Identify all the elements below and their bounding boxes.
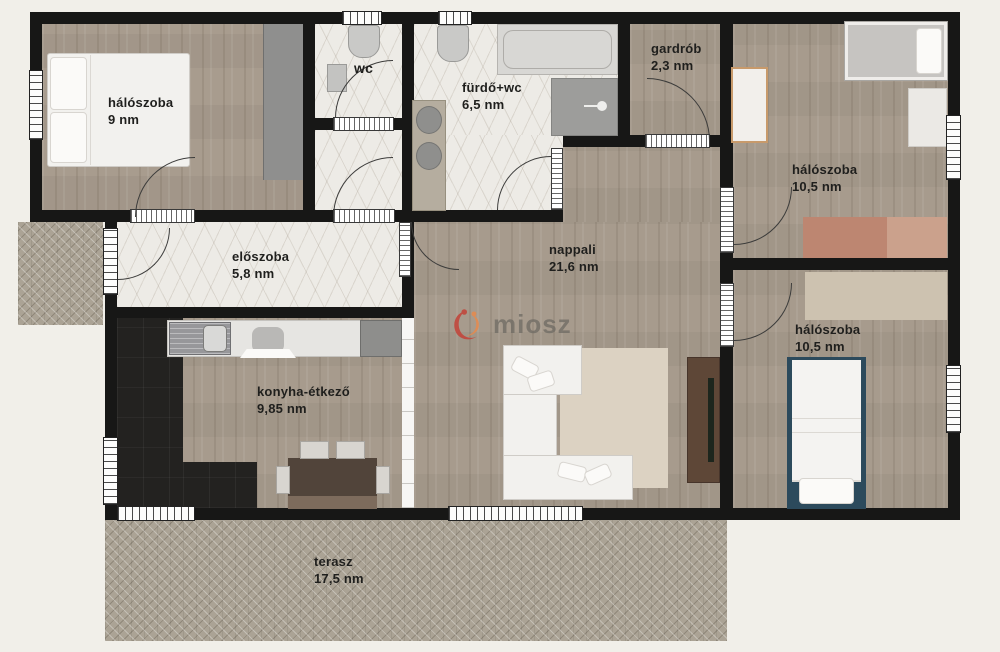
door-threshold [333,117,394,131]
bed-pillow [799,478,854,504]
window [103,437,118,505]
sink-basin [203,325,227,352]
nightstand [908,88,947,147]
room-name: terasz [314,554,364,571]
door-threshold [720,187,734,253]
room-area: 2,3 nm [651,58,702,75]
room-label-living: nappali 21,6 nm [549,242,599,275]
floor-living-upper [563,147,720,222]
washbasin [416,106,442,134]
room-label-bedroom-top-right: hálószoba 10,5 nm [792,162,857,195]
room-label-bedroom-bot-right: hálószoba 10,5 nm [795,322,860,355]
entry-door [103,228,118,295]
room-area: 9 nm [108,112,173,129]
duvet-fold [792,432,861,433]
bed-pillow [50,112,87,163]
tv-screen [708,378,714,462]
watermark-logo: miosz [449,306,572,343]
window [448,506,583,521]
extractor-hood [240,349,296,358]
bathtub [497,24,618,75]
room-name: wc [354,60,373,78]
bed-pillow [50,57,87,110]
bed-duvet [792,360,861,482]
room-label-terrace: terasz 17,5 nm [314,554,364,587]
fridge [360,320,402,357]
room-label-kitchen: konyha-étkező 9,85 nm [257,384,350,417]
terrace-paving [105,520,727,641]
dining-chair [276,466,290,494]
window [438,11,472,25]
tv-stand [687,357,720,483]
shower-head-icon [597,101,607,111]
room-area: 21,6 nm [549,259,599,276]
dining-table [288,458,377,496]
area-rug [805,272,947,320]
shower-arm-icon [584,105,598,107]
duvet-fold [792,418,861,419]
room-name: gardrób [651,41,702,58]
entry-stoop-paving [18,222,103,325]
closet [263,24,303,180]
shower [551,78,618,136]
room-area: 10,5 nm [792,179,857,196]
window [29,70,43,140]
dresser [803,217,887,258]
room-name: hálószoba [792,162,857,179]
bed-pillow [916,28,942,74]
door-leaf [399,222,411,277]
room-area: 10,5 nm [795,339,860,356]
room-area: 9,85 nm [257,401,350,418]
room-name: fürdő+wc [462,80,522,97]
washbasin [416,142,442,170]
room-label-bedroom-top-left: hálószoba 9 nm [108,95,173,128]
toilet [437,25,469,62]
brand-name: miosz [493,309,572,340]
room-label-hallway: előszoba 5,8 nm [232,249,289,282]
miosz-logo-icon [449,306,486,343]
window [342,11,382,25]
dining-chair [376,466,390,494]
dining-chair [336,441,365,459]
room-area: 5,8 nm [232,266,289,283]
toilet [348,25,380,58]
room-label-wc: wc [354,60,373,78]
room-name: hálószoba [108,95,173,112]
room-name: előszoba [232,249,289,266]
room-area: 17,5 nm [314,571,364,588]
room-label-bathroom: fürdő+wc 6,5 nm [462,80,522,113]
dining-chair [300,441,329,459]
wardrobe-cabinet [731,67,768,143]
door-leaf [551,148,563,210]
kitchen-living-passage [402,318,414,508]
window [117,506,195,521]
window [946,115,961,180]
window [946,365,961,433]
door-threshold [720,283,734,347]
sofa-body [503,394,557,456]
dining-bench [288,496,377,509]
room-name: konyha-étkező [257,384,350,401]
room-name: hálószoba [795,322,860,339]
room-label-wardrobe: gardrób 2,3 nm [651,41,702,74]
duvet-seam [90,55,91,165]
bathtub-basin [503,30,612,69]
floor-plan: hálószoba 9 nm wc fürdő+wc 6,5 nm gardró… [0,0,1000,652]
kitchen-dark-tile-bottom [183,462,257,508]
room-area: 6,5 nm [462,97,522,114]
room-name: nappali [549,242,599,259]
dresser [887,217,947,258]
